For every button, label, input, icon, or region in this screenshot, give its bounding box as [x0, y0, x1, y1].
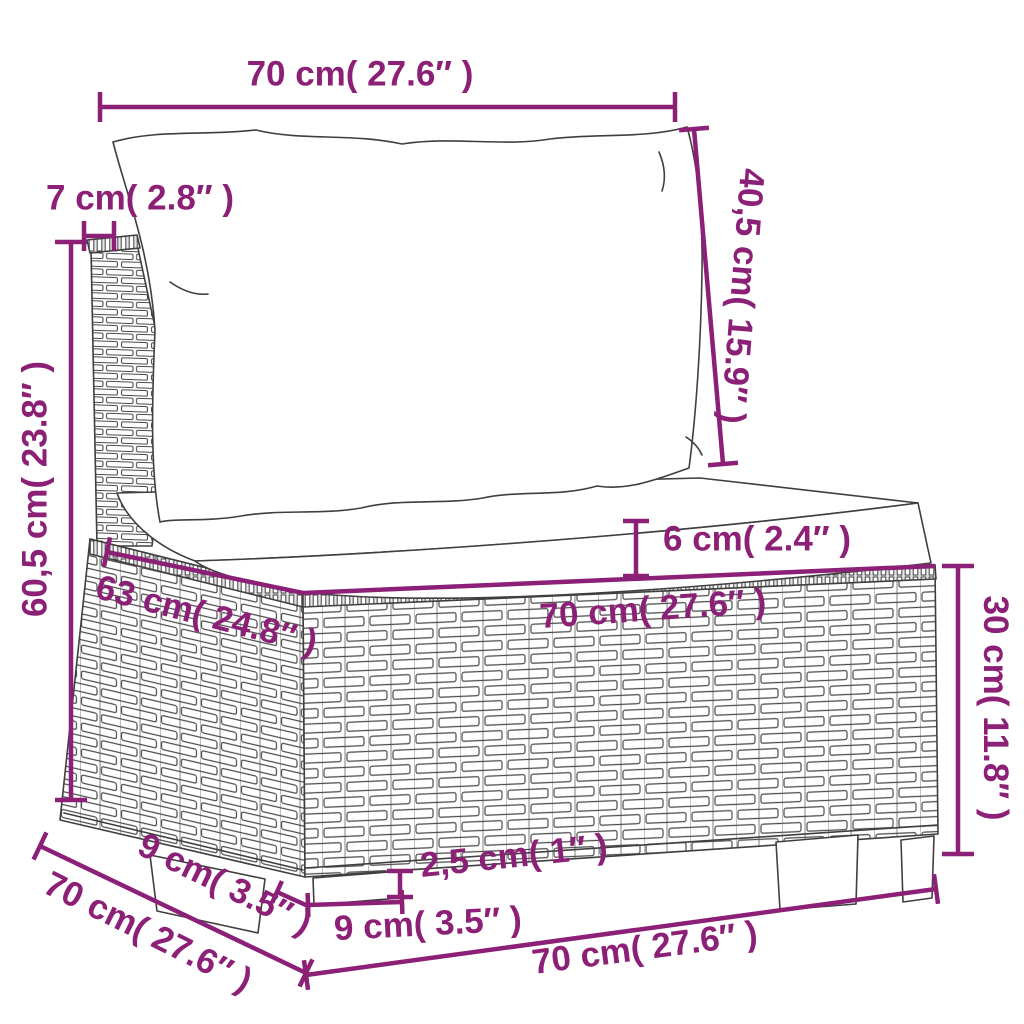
- dim-base-height: 30 cm( 11.8″ ): [942, 566, 1015, 854]
- dim-line-foot-width: [308, 902, 402, 905]
- dim-label-foot-width: 9 cm( 3.5″ ): [333, 899, 523, 948]
- dim-tick-back-cushion-height: [708, 463, 738, 466]
- dim-label-back-cushion-width: 70 cm( 27.6″ ): [247, 54, 474, 93]
- dim-back-cushion-width: 70 cm( 27.6″ ): [100, 54, 675, 122]
- dim-tick-foot-width: [308, 893, 309, 917]
- foot-front-right: [776, 835, 858, 910]
- dim-tick-base-width-bottom: [304, 960, 308, 990]
- dim-tick-base-width-bottom: [934, 874, 938, 904]
- product-dimension-diagram: 70 cm( 27.6″ )40,5 cm( 15.9″ )7 cm( 2.8″…: [0, 0, 1024, 1024]
- dim-label-back-cushion-height: 40,5 cm( 15.9″ ): [713, 167, 772, 425]
- dim-label-total-height: 60,5 cm( 23.8″ ): [15, 361, 54, 617]
- dim-tick-back-cushion-height: [679, 128, 709, 131]
- dimension-diagram-canvas: 70 cm( 27.6″ )40,5 cm( 15.9″ )7 cm( 2.8″…: [0, 0, 1024, 1024]
- dim-label-base-width-bottom: 70 cm( 27.6″ ): [530, 914, 760, 982]
- dim-label-back-panel-depth: 7 cm( 2.8″ ): [46, 178, 234, 217]
- dim-label-base-height: 30 cm( 11.8″ ): [976, 596, 1015, 821]
- dim-label-seat-cushion-thickness: 6 cm( 2.4″ ): [663, 519, 851, 558]
